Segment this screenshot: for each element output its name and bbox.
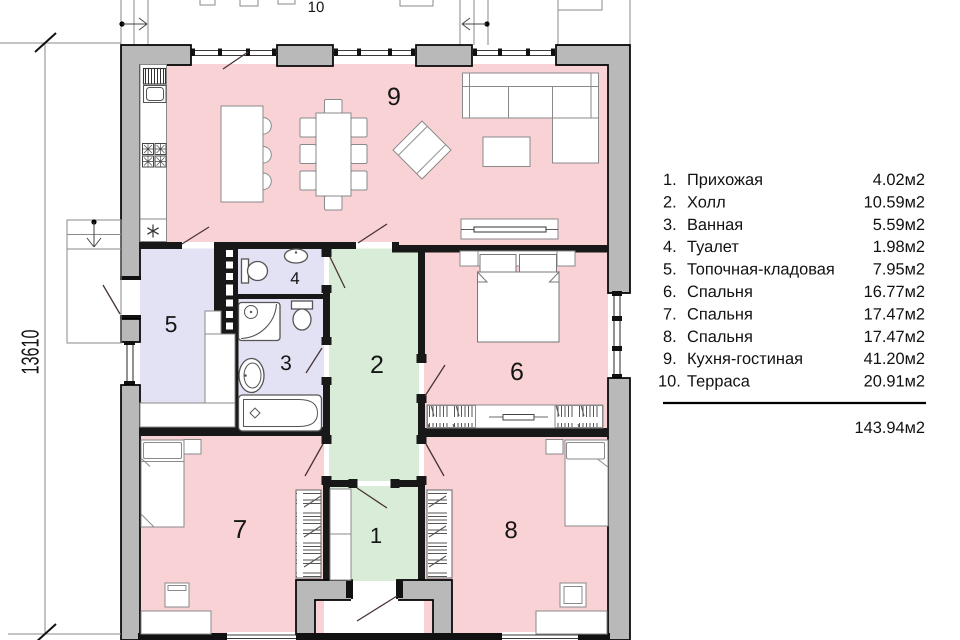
svg-text:4.: 4.: [663, 238, 677, 256]
svg-text:Ванная: Ванная: [687, 216, 743, 234]
svg-text:16.77м2: 16.77м2: [864, 283, 925, 301]
svg-text:Спальня: Спальня: [687, 328, 753, 346]
svg-text:5.: 5.: [663, 261, 677, 279]
svg-text:Топочная-кладовая: Топочная-кладовая: [687, 261, 835, 279]
svg-text:143.94м2: 143.94м2: [854, 419, 925, 437]
svg-text:13610: 13610: [18, 330, 45, 375]
svg-text:17.47м2: 17.47м2: [864, 305, 925, 323]
svg-text:3.: 3.: [663, 216, 677, 234]
svg-text:6.: 6.: [663, 283, 677, 301]
svg-text:5.59м2: 5.59м2: [873, 216, 925, 234]
svg-text:3: 3: [280, 352, 292, 375]
svg-text:1: 1: [370, 523, 382, 548]
svg-text:Терраса: Терраса: [687, 373, 751, 391]
svg-text:7.: 7.: [663, 305, 677, 323]
svg-text:Кухня-гостиная: Кухня-гостиная: [687, 350, 803, 368]
svg-text:7: 7: [233, 514, 247, 544]
svg-text:10: 10: [308, 0, 325, 16]
svg-text:2: 2: [370, 351, 384, 379]
svg-text:Прихожая: Прихожая: [687, 171, 763, 189]
svg-text:Холл: Холл: [687, 193, 726, 211]
svg-text:Туалет: Туалет: [687, 238, 739, 256]
svg-text:1.98м2: 1.98м2: [873, 238, 925, 256]
svg-text:20.91м2: 20.91м2: [864, 373, 925, 391]
svg-text:6: 6: [510, 358, 524, 386]
svg-text:7.95м2: 7.95м2: [873, 261, 925, 279]
svg-text:Спальня: Спальня: [687, 283, 753, 301]
svg-text:4.02м2: 4.02м2: [873, 171, 925, 189]
svg-text:9.: 9.: [663, 350, 677, 368]
svg-text:1.: 1.: [663, 171, 677, 189]
svg-text:17.47м2: 17.47м2: [864, 328, 925, 346]
svg-text:Спальня: Спальня: [687, 305, 753, 323]
svg-text:9: 9: [387, 83, 401, 111]
svg-text:2.: 2.: [663, 193, 677, 211]
svg-text:8.: 8.: [663, 328, 677, 346]
svg-text:8: 8: [504, 517, 517, 544]
svg-text:41.20м2: 41.20м2: [864, 350, 925, 368]
svg-text:10.: 10.: [658, 373, 681, 391]
svg-text:5: 5: [165, 311, 178, 337]
svg-text:4: 4: [290, 269, 299, 288]
svg-text:10.59м2: 10.59м2: [864, 193, 925, 211]
